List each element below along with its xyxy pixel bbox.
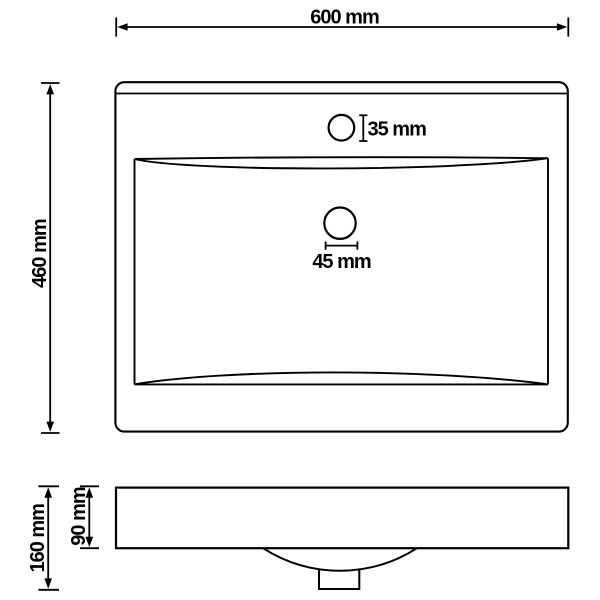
svg-text:45 mm: 45 mm <box>312 251 371 273</box>
svg-text:600 mm: 600 mm <box>310 7 379 29</box>
svg-text:460 mm: 460 mm <box>29 219 51 288</box>
svg-text:90 mm: 90 mm <box>68 487 90 546</box>
svg-text:35 mm: 35 mm <box>368 118 427 140</box>
svg-text:160 mm: 160 mm <box>27 504 49 573</box>
